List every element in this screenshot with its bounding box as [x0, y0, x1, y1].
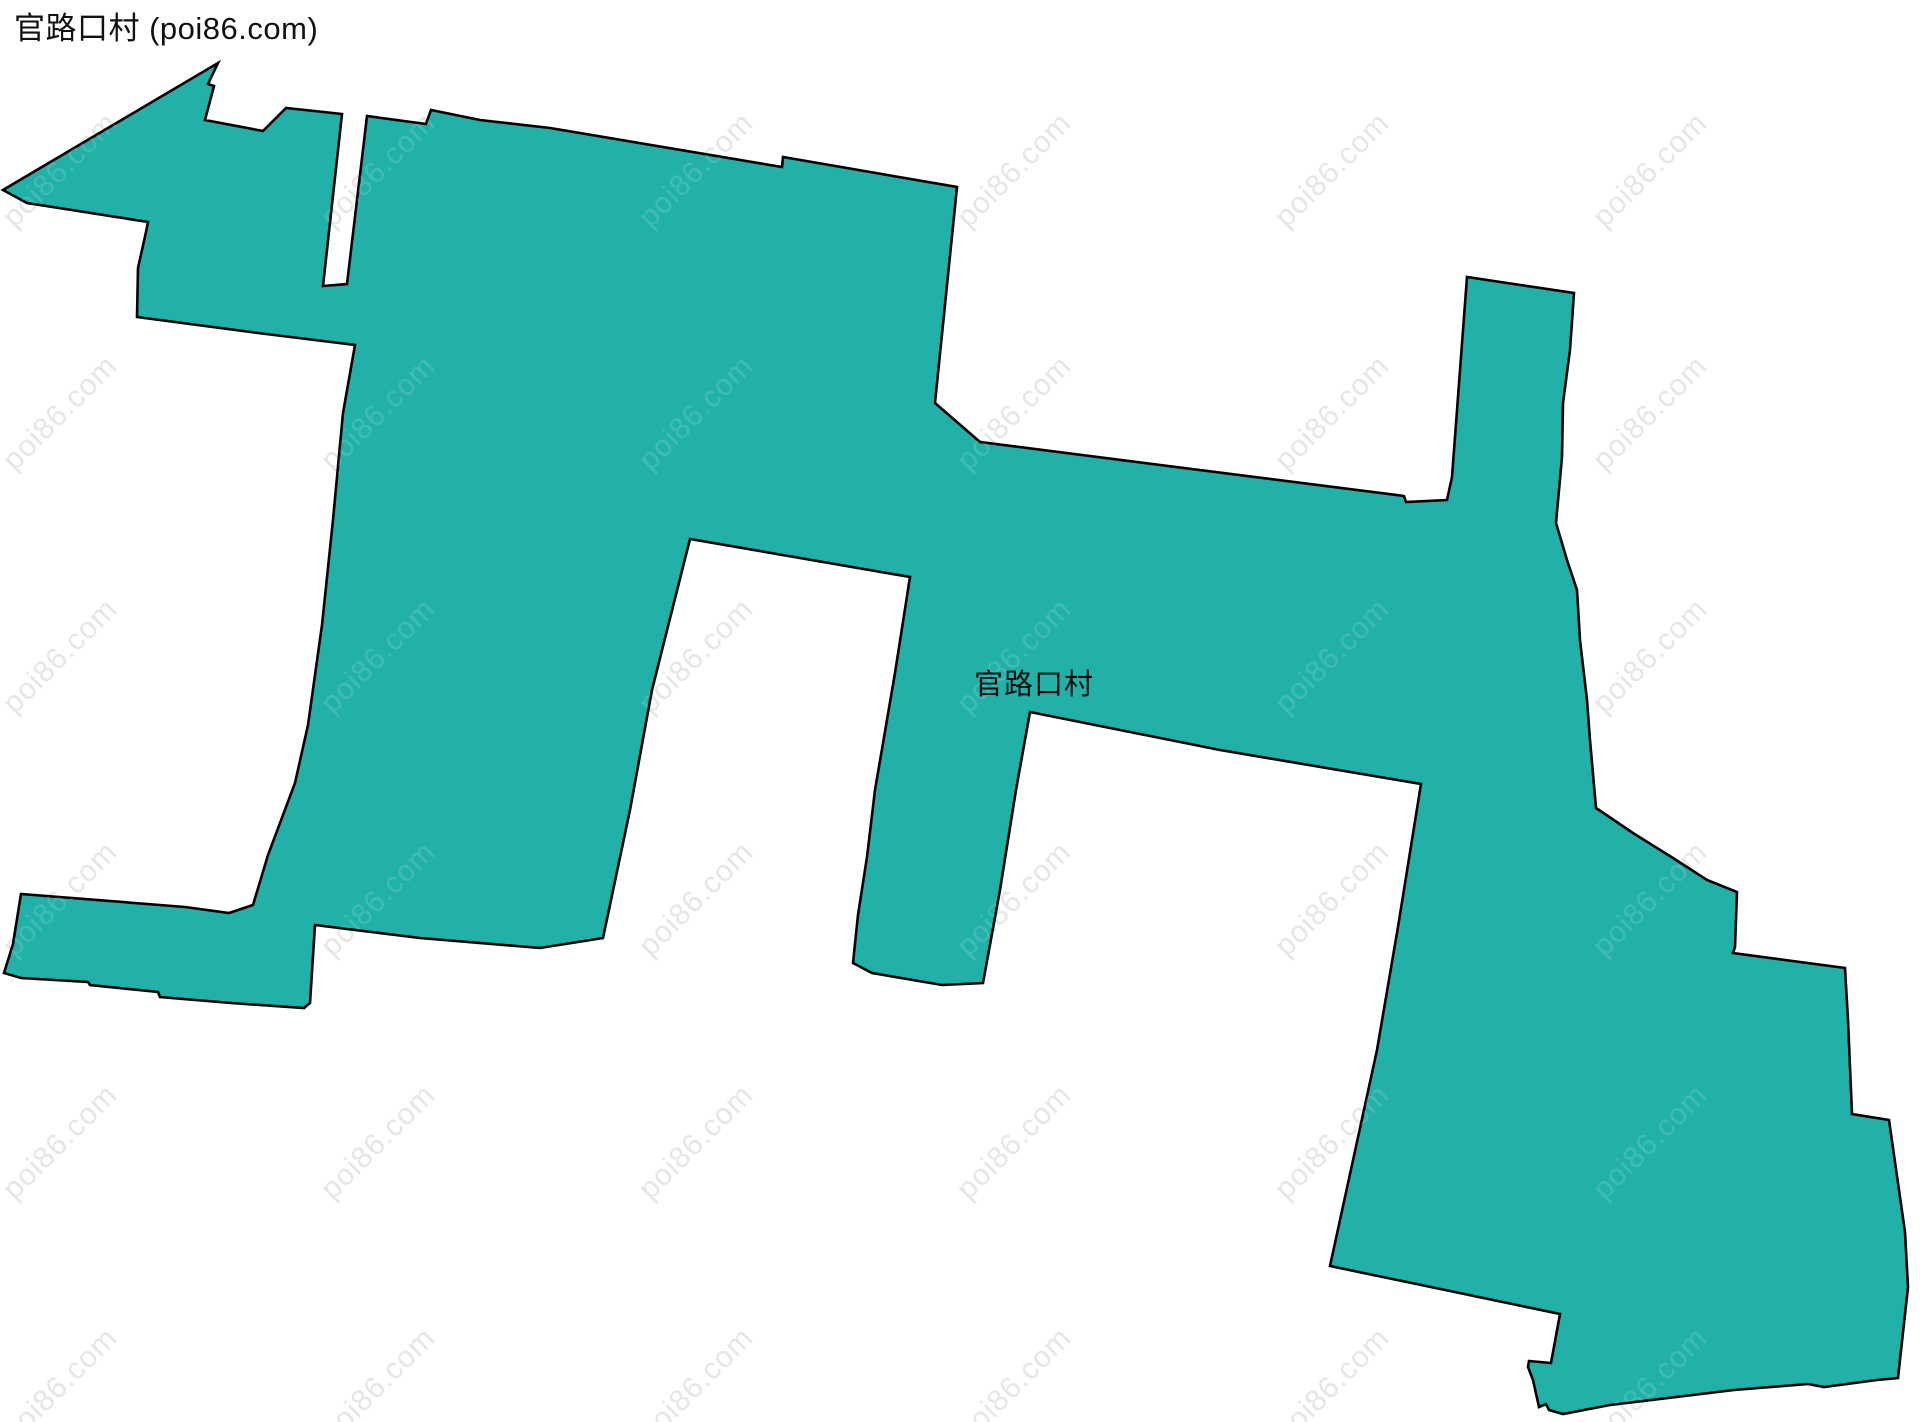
- watermark-text: poi86.com: [950, 106, 1078, 234]
- watermark-text: poi86.com: [1586, 106, 1714, 234]
- watermark-text: poi86.com: [1268, 835, 1396, 963]
- map-title: 官路口村 (poi86.com): [14, 10, 318, 48]
- map-canvas: poi86.compoi86.compoi86.compoi86.compoi8…: [0, 0, 1920, 1422]
- village-label: 官路口村: [974, 668, 1094, 702]
- watermark-text: poi86.com: [1268, 349, 1396, 477]
- watermark-text: poi86.com: [950, 1321, 1078, 1422]
- watermark-text: poi86.com: [0, 1078, 124, 1206]
- watermark-text: poi86.com: [1586, 349, 1714, 477]
- village-boundary-polygon: [3, 63, 1908, 1414]
- watermark-text: poi86.com: [314, 1078, 442, 1206]
- watermark-text: poi86.com: [0, 349, 124, 477]
- watermark-text: poi86.com: [1586, 592, 1714, 720]
- watermark-text: poi86.com: [1268, 1321, 1396, 1422]
- watermark-text: poi86.com: [1268, 106, 1396, 234]
- watermark-text: poi86.com: [314, 1321, 442, 1422]
- watermark-text: poi86.com: [632, 1078, 760, 1206]
- watermark-text: poi86.com: [632, 1321, 760, 1422]
- watermark-text: poi86.com: [0, 1321, 124, 1422]
- watermark-text: poi86.com: [632, 835, 760, 963]
- watermark-text: poi86.com: [0, 592, 124, 720]
- village-boundary-map: poi86.compoi86.compoi86.compoi86.compoi8…: [0, 0, 1920, 1422]
- watermark-text: poi86.com: [950, 1078, 1078, 1206]
